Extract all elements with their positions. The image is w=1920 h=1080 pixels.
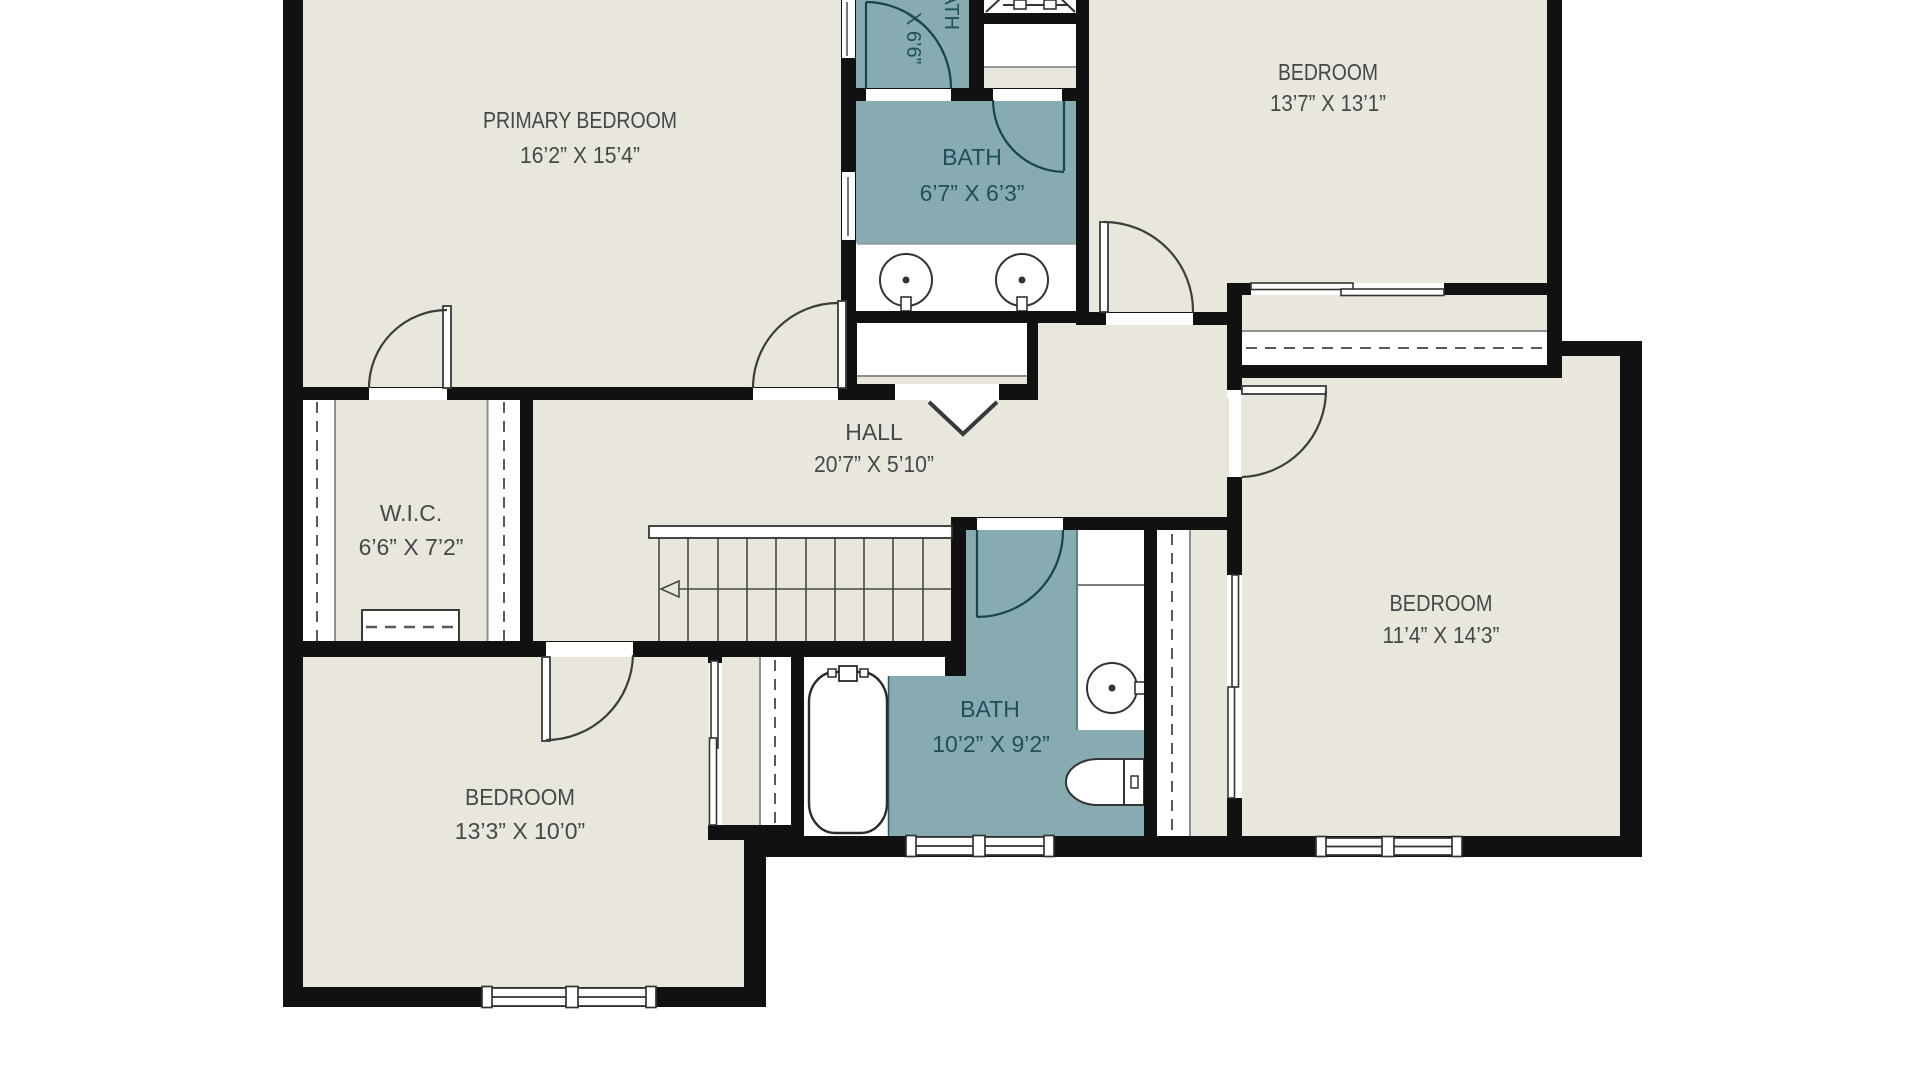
svg-text:BATH: BATH	[942, 144, 1002, 170]
svg-text:11’4” X 14’3”: 11’4” X 14’3”	[1383, 622, 1500, 648]
svg-text:16’2” X 15’4”: 16’2” X 15’4”	[520, 142, 640, 168]
svg-text:13’3” X 10’0”: 13’3” X 10’0”	[455, 818, 585, 844]
svg-text:X 6’6”: X 6’6”	[902, 12, 924, 64]
svg-text:20’7” X 5’10”: 20’7” X 5’10”	[814, 451, 934, 477]
svg-text:13’7” X 13’1”: 13’7” X 13’1”	[1270, 90, 1386, 116]
svg-text:PRIMARY BEDROOM: PRIMARY BEDROOM	[483, 107, 677, 133]
svg-text:BEDROOM: BEDROOM	[1278, 59, 1378, 85]
svg-text:6’7” X 6’3”: 6’7” X 6’3”	[920, 180, 1025, 206]
svg-text:BEDROOM: BEDROOM	[465, 784, 575, 810]
svg-text:W.I.C.: W.I.C.	[380, 500, 443, 526]
svg-text:BATH: BATH	[960, 696, 1020, 722]
svg-text:BATH: BATH	[940, 0, 962, 30]
svg-text:BEDROOM: BEDROOM	[1390, 590, 1493, 616]
svg-text:10’2” X 9’2”: 10’2” X 9’2”	[932, 731, 1050, 757]
svg-text:HALL: HALL	[845, 419, 903, 445]
svg-text:6’6” X 7’2”: 6’6” X 7’2”	[359, 534, 464, 560]
